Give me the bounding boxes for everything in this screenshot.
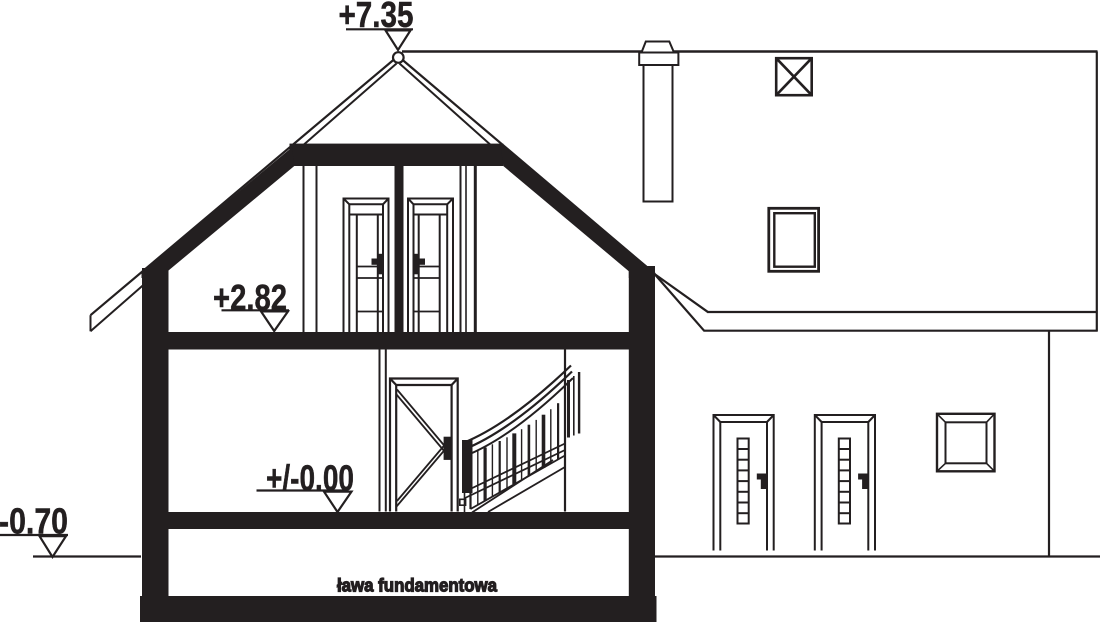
svg-text:-0.70: -0.70 <box>0 501 68 542</box>
svg-text:ława fundamentowa: ława fundamentowa <box>337 576 498 596</box>
svg-text:+2.82: +2.82 <box>213 277 287 318</box>
svg-text:+7.35: +7.35 <box>339 0 414 35</box>
svg-text:+/-0.00: +/-0.00 <box>266 458 354 499</box>
